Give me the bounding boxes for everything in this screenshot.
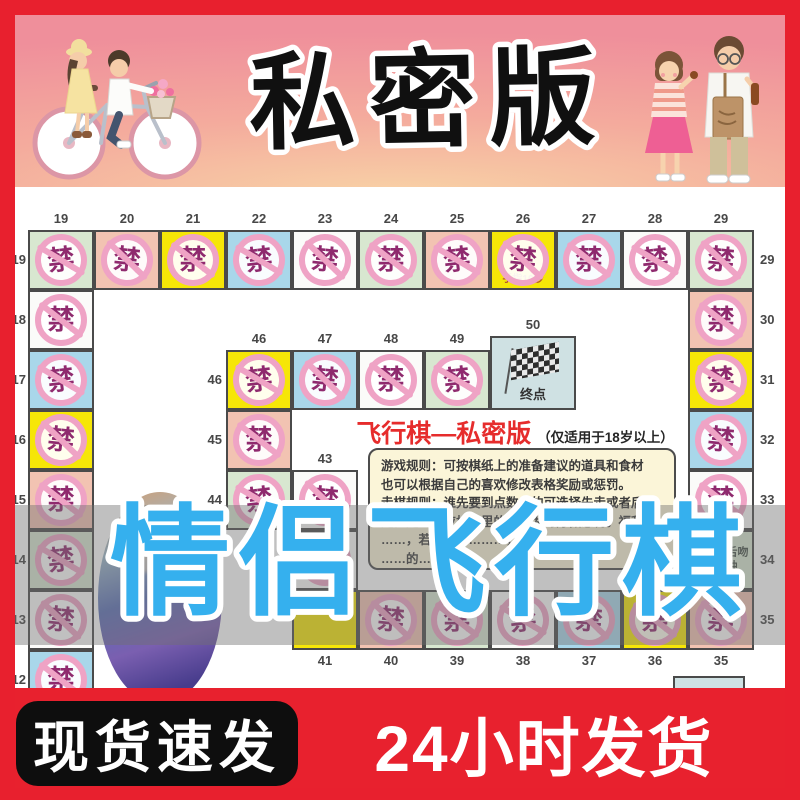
cell-number-label: 19: [28, 211, 94, 227]
frame-left: [0, 0, 15, 800]
forbidden-stamp-icon: 禁: [365, 354, 417, 406]
stock-badge-text: 现货速发: [33, 703, 281, 784]
cell-number-label: 36: [622, 653, 688, 669]
cell-number-label: 26: [490, 211, 556, 227]
cell-number-label: 24: [358, 211, 424, 227]
frame-top: [0, 0, 800, 15]
frame-right: [785, 0, 800, 800]
product-image: 飞行棋—私密版 （仅适用于18岁以上） 游戏规则：可按棋纸上的准备建议的道具和食…: [0, 0, 800, 800]
banner-title: 私密版: [190, 25, 670, 180]
cell-number-label: 50: [490, 317, 576, 333]
board-cell-45: 禁: [226, 410, 292, 470]
board-cell-29: 禁: [688, 230, 754, 290]
stock-badge: 现货速发: [16, 701, 298, 786]
shipping-text: 24小时发货: [300, 688, 788, 800]
cell-number-label: 25: [424, 211, 490, 227]
cell-number-label: 48: [358, 331, 424, 347]
cell-number-label: 41: [292, 653, 358, 669]
forbidden-stamp-icon: 禁: [35, 294, 87, 346]
forbidden-stamp-icon: 禁: [695, 294, 747, 346]
finish-label: 终点: [492, 384, 574, 403]
forbidden-stamp-icon: 禁: [692, 411, 749, 468]
cell-number-label: 21: [160, 211, 226, 227]
board-cell-18: 禁: [28, 290, 94, 350]
board-cell-30: 禁: [688, 290, 754, 350]
couple-standing-illustration: [625, 25, 783, 187]
cell-number-label: 32: [760, 432, 788, 448]
cell-number-label: 49: [424, 331, 490, 347]
cell-number-label: 22: [226, 211, 292, 227]
rules-line: 游戏规则：可按棋纸上的准备建议的道具和食材: [381, 457, 663, 476]
forbidden-stamp-icon: 禁: [428, 351, 486, 409]
board-cell-46: 禁: [226, 350, 292, 410]
board-cell-21: 禁: [160, 230, 226, 290]
cell-number-label: 35: [688, 653, 754, 669]
board-cell-19: 禁: [28, 230, 94, 290]
forbidden-stamp-icon: 禁: [233, 414, 285, 466]
forbidden-stamp-icon: 禁: [32, 411, 89, 468]
board-cell-49: 禁: [424, 350, 490, 410]
cell-number-label: 29: [688, 211, 754, 227]
forbidden-stamp-icon: 禁: [98, 231, 155, 288]
forbidden-stamp-icon: 禁: [32, 231, 90, 289]
cell-number-label: 46: [190, 372, 222, 388]
board-cell-22: 禁: [226, 230, 292, 290]
finish-flag-icon: [511, 342, 559, 380]
cell-number-label: 37: [556, 653, 622, 669]
cell-number-label: 23: [292, 211, 358, 227]
forbidden-stamp-icon: 禁: [365, 234, 417, 286]
bottom-banner: 现货速发 24小时发货: [0, 688, 800, 800]
board-cell-26: 手指10秒禁: [490, 230, 556, 290]
board-cell-25: 禁: [424, 230, 490, 290]
cell-number-label: 30: [760, 312, 788, 328]
board-cell-27: 禁: [556, 230, 622, 290]
cell-number-label: 38: [490, 653, 556, 669]
banner-title-text: 私密版: [248, 39, 610, 163]
forbidden-stamp-icon: 禁: [296, 231, 353, 288]
product-title-text: 情侣飞行棋: [110, 496, 750, 630]
board-cell-20: 禁: [94, 230, 160, 290]
cell-number-label: 28: [622, 211, 688, 227]
board-cell-24: 禁: [358, 230, 424, 290]
board-cell-23: 禁: [292, 230, 358, 290]
board-cell-16: 禁: [28, 410, 94, 470]
board-cell-47: 禁: [292, 350, 358, 410]
board-age-note: （仅适用于18岁以上）: [537, 426, 674, 446]
board-title: 飞行棋—私密版 （仅适用于18岁以上）: [300, 414, 730, 450]
board-title-red: 飞行棋—私密版: [356, 414, 531, 450]
board-cell-50: 终点: [490, 336, 576, 410]
cell-number-label: 31: [760, 372, 788, 388]
frame-bottom: [0, 788, 800, 800]
forbidden-stamp-icon: 禁: [563, 234, 615, 286]
cell-number-label: 46: [226, 331, 292, 347]
cell-number-label: 40: [358, 653, 424, 669]
board-cell-48: 禁: [358, 350, 424, 410]
forbidden-stamp-icon: 禁: [167, 234, 219, 286]
couple-bicycle-illustration: [21, 21, 206, 183]
cell-number-label: 47: [292, 331, 358, 347]
forbidden-stamp-icon: 禁: [296, 351, 353, 408]
forbidden-stamp-icon: 禁: [230, 231, 288, 289]
forbidden-stamp-icon: 禁: [692, 351, 750, 409]
board-cell-28: 禁: [622, 230, 688, 290]
cell-number-label: 43: [292, 451, 358, 467]
product-title-overlay: 情侣飞行棋: [15, 482, 785, 647]
board-cell-31: 禁: [688, 350, 754, 410]
cell-number-label: 29: [760, 252, 788, 268]
cell-number-label: 45: [190, 432, 222, 448]
top-banner: 私密版: [15, 15, 785, 187]
forbidden-stamp-icon: 禁: [692, 231, 749, 288]
cell-number-label: 20: [94, 211, 160, 227]
board-cell-17: 禁: [28, 350, 94, 410]
forbidden-stamp-icon: 禁: [230, 351, 288, 409]
cell-number-label: 27: [556, 211, 622, 227]
forbidden-stamp-icon: 禁: [626, 231, 684, 289]
cell-number-label: 39: [424, 653, 490, 669]
forbidden-stamp-icon: 禁: [428, 231, 486, 289]
forbidden-stamp-icon: 禁: [32, 351, 90, 409]
